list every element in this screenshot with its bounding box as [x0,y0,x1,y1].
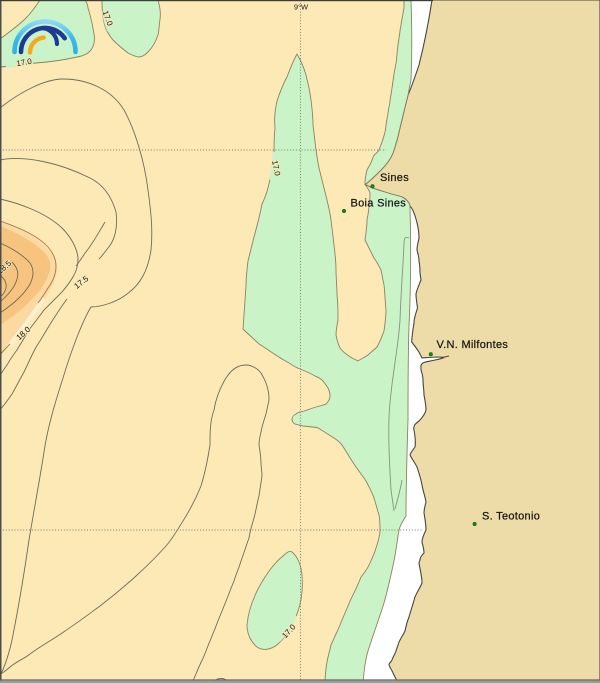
svg-text:V.N. Milfontes: V.N. Milfontes [437,339,509,351]
svg-text:S. Teotonio: S. Teotonio [482,511,540,523]
svg-text:Sines: Sines [380,172,409,184]
svg-text:9°W: 9°W [294,3,309,12]
svg-text:Boia Sines: Boia Sines [351,198,407,210]
